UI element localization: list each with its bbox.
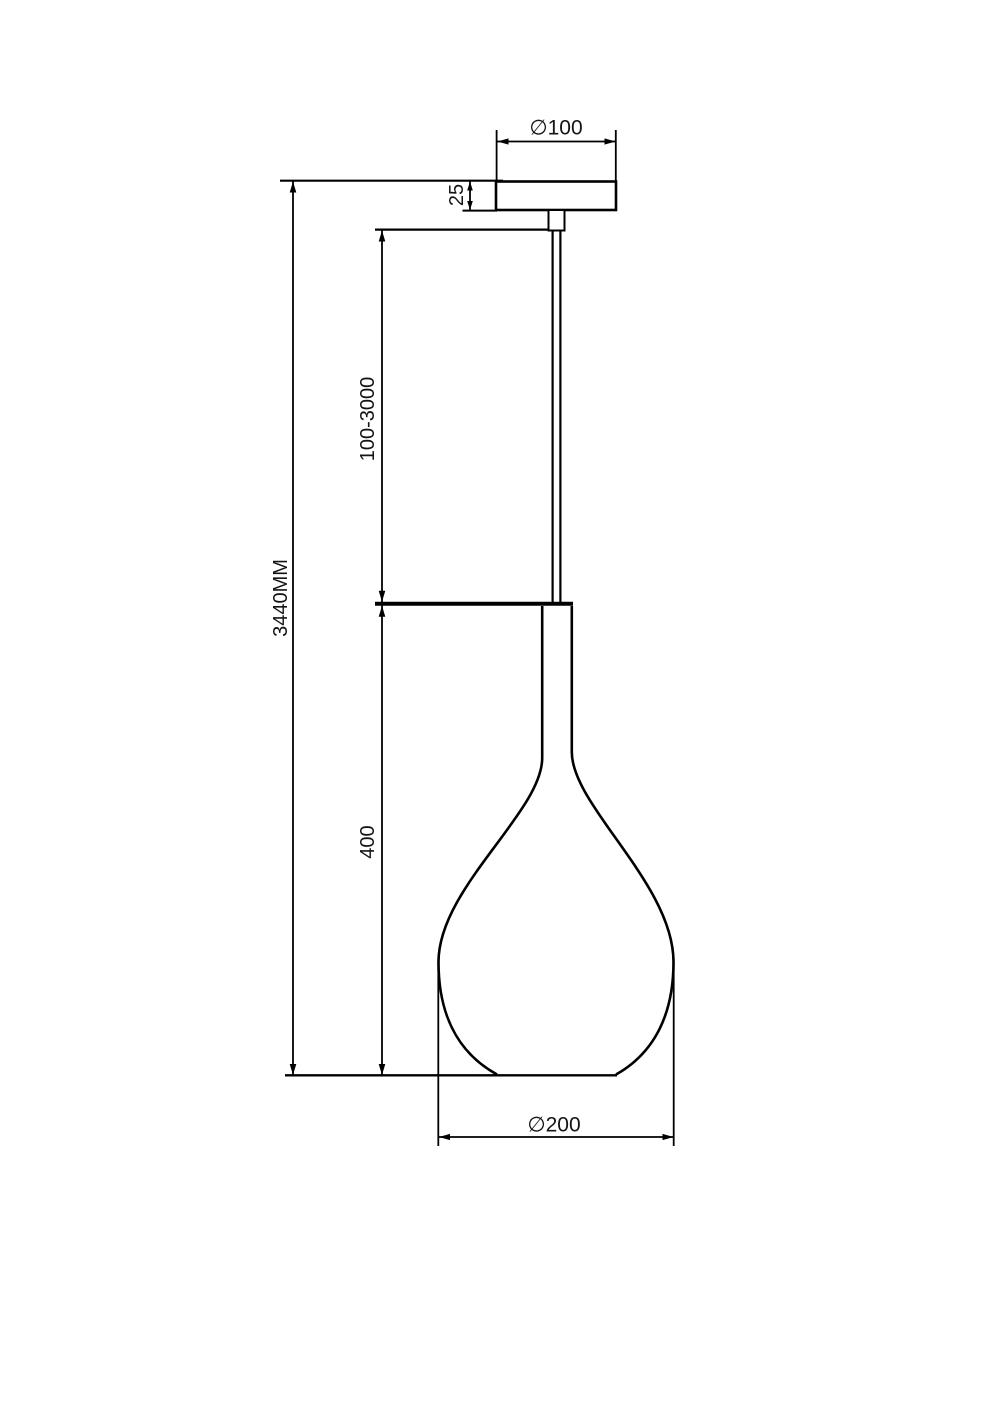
overall-height-label: 3440MM [271, 559, 291, 637]
canopy-diameter-label: ∅100 [529, 118, 582, 139]
cord-connector [549, 210, 565, 231]
pendant-lamp-dimension-drawing [0, 0, 992, 1403]
ceiling-canopy [496, 182, 616, 211]
suspension-cord [553, 231, 561, 603]
overall-height-dimension [280, 181, 503, 1075]
shade-outline-right [572, 606, 674, 1075]
canopy-height-label: 25 [447, 184, 467, 206]
technical-drawing-page: ∅100 25 100-3000 3440MM 400 ∅200 [0, 0, 992, 1403]
cord-length-label: 100-3000 [358, 377, 378, 462]
shade-outline-left [439, 606, 543, 1075]
glass-shade [285, 604, 674, 1076]
shade-diameter-label: ∅200 [527, 1115, 580, 1136]
cord-length-dimension [375, 230, 549, 1075]
shade-height-label: 400 [358, 825, 378, 858]
